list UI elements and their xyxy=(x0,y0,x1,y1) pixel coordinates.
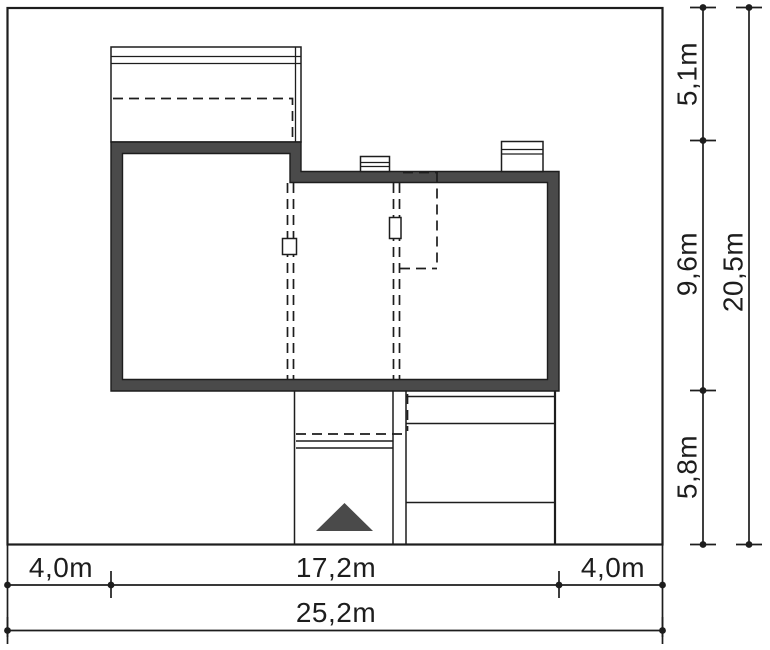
dimension-dot xyxy=(700,4,707,11)
dimension-dot xyxy=(4,627,11,634)
dim-label-total-depth: 20,5m xyxy=(718,232,749,312)
chimney-2-body xyxy=(502,142,544,172)
dimension-dot xyxy=(4,582,11,589)
roof-window-2 xyxy=(390,218,402,239)
plan-svg: 4,0m 17,2m 4,0m 25,2m 5,1m 9,6m 5,8m 20,… xyxy=(0,0,770,650)
interior-dashed-projections xyxy=(283,173,439,380)
dim-label-building-width: 17,2m xyxy=(296,552,376,583)
dim-label-top-setback: 5,1m xyxy=(672,42,703,106)
dimension-dot xyxy=(700,137,707,144)
dimension-dot xyxy=(700,387,707,394)
dimension-dot xyxy=(108,582,115,589)
entrance-arrow-icon xyxy=(316,503,373,531)
plot-boundary xyxy=(8,8,663,545)
dimension-dot xyxy=(556,582,563,589)
right-dimensions: 5,1m 9,6m 5,8m 20,5m xyxy=(672,4,763,548)
bottom-dimensions: 4,0m 17,2m 4,0m 25,2m xyxy=(4,544,666,644)
dimension-dot xyxy=(746,541,753,548)
dim-label-left-setback: 4,0m xyxy=(29,552,93,583)
dimension-dot xyxy=(700,541,707,548)
dimension-dot xyxy=(659,627,666,634)
driveway-terrace xyxy=(295,391,556,544)
dim-label-right-setback: 4,0m xyxy=(581,552,645,583)
roof-overhang-dashed xyxy=(113,99,293,141)
chimney-1 xyxy=(361,157,390,172)
dim-label-bottom-setback: 5,8m xyxy=(672,435,703,499)
dim-label-building-depth: 9,6m xyxy=(672,232,703,296)
roof-window-1 xyxy=(283,239,297,255)
chimney-1-body xyxy=(361,157,390,172)
garage-roof-rect xyxy=(111,47,301,142)
garage-roof-outline xyxy=(111,47,301,142)
dim-label-total-width: 25,2m xyxy=(296,597,376,628)
dimension-dot xyxy=(659,582,666,589)
site-plan-drawing: 4,0m 17,2m 4,0m 25,2m 5,1m 9,6m 5,8m 20,… xyxy=(0,0,770,650)
chimney-2 xyxy=(502,142,544,172)
dimension-dot xyxy=(746,4,753,11)
building-walls xyxy=(111,142,559,391)
